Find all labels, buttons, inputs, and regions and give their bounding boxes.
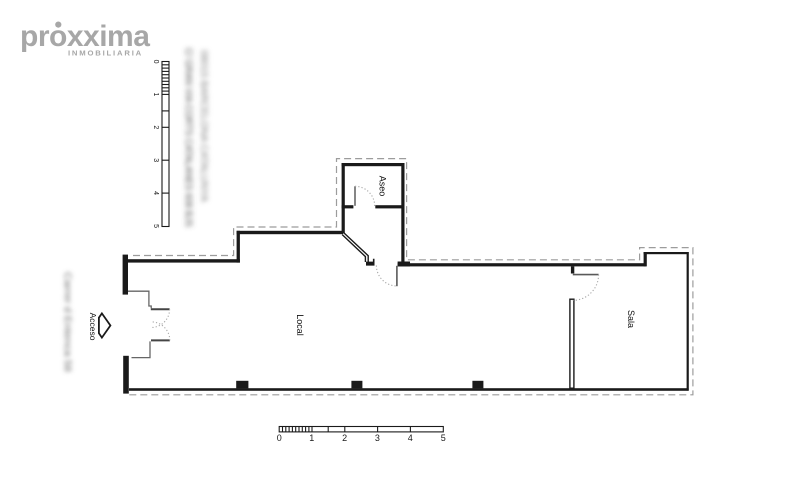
svg-text:1: 1 (152, 92, 159, 96)
svg-text:0: 0 (152, 60, 159, 64)
svg-text:Local: Local (295, 314, 305, 336)
svg-text:INMOBILIARIA: INMOBILIARIA (68, 48, 143, 57)
svg-text:2: 2 (152, 125, 159, 129)
svg-text:Acceso: Acceso (88, 313, 98, 341)
svg-text:C/ GRAN VIA CORTS CATALANES 60: C/ GRAN VIA CORTS CATALANES 608 BJS (183, 48, 195, 227)
svg-text:0: 0 (277, 433, 282, 443)
svg-text:Carrer d Entenca 58: Carrer d Entenca 58 (62, 272, 73, 372)
svg-text:2: 2 (342, 433, 347, 443)
svg-text:1: 1 (309, 433, 314, 443)
svg-text:Sala: Sala (626, 310, 636, 328)
svg-text:3: 3 (152, 158, 159, 162)
svg-text:4: 4 (152, 191, 159, 195)
svg-text:Aseo: Aseo (378, 176, 388, 197)
svg-text:08015 BARCELONA CATALUNYA: 08015 BARCELONA CATALUNYA (198, 50, 210, 202)
svg-text:3: 3 (375, 433, 380, 443)
svg-text:5: 5 (152, 224, 159, 228)
svg-text:4: 4 (408, 433, 413, 443)
svg-text:5: 5 (441, 433, 446, 443)
